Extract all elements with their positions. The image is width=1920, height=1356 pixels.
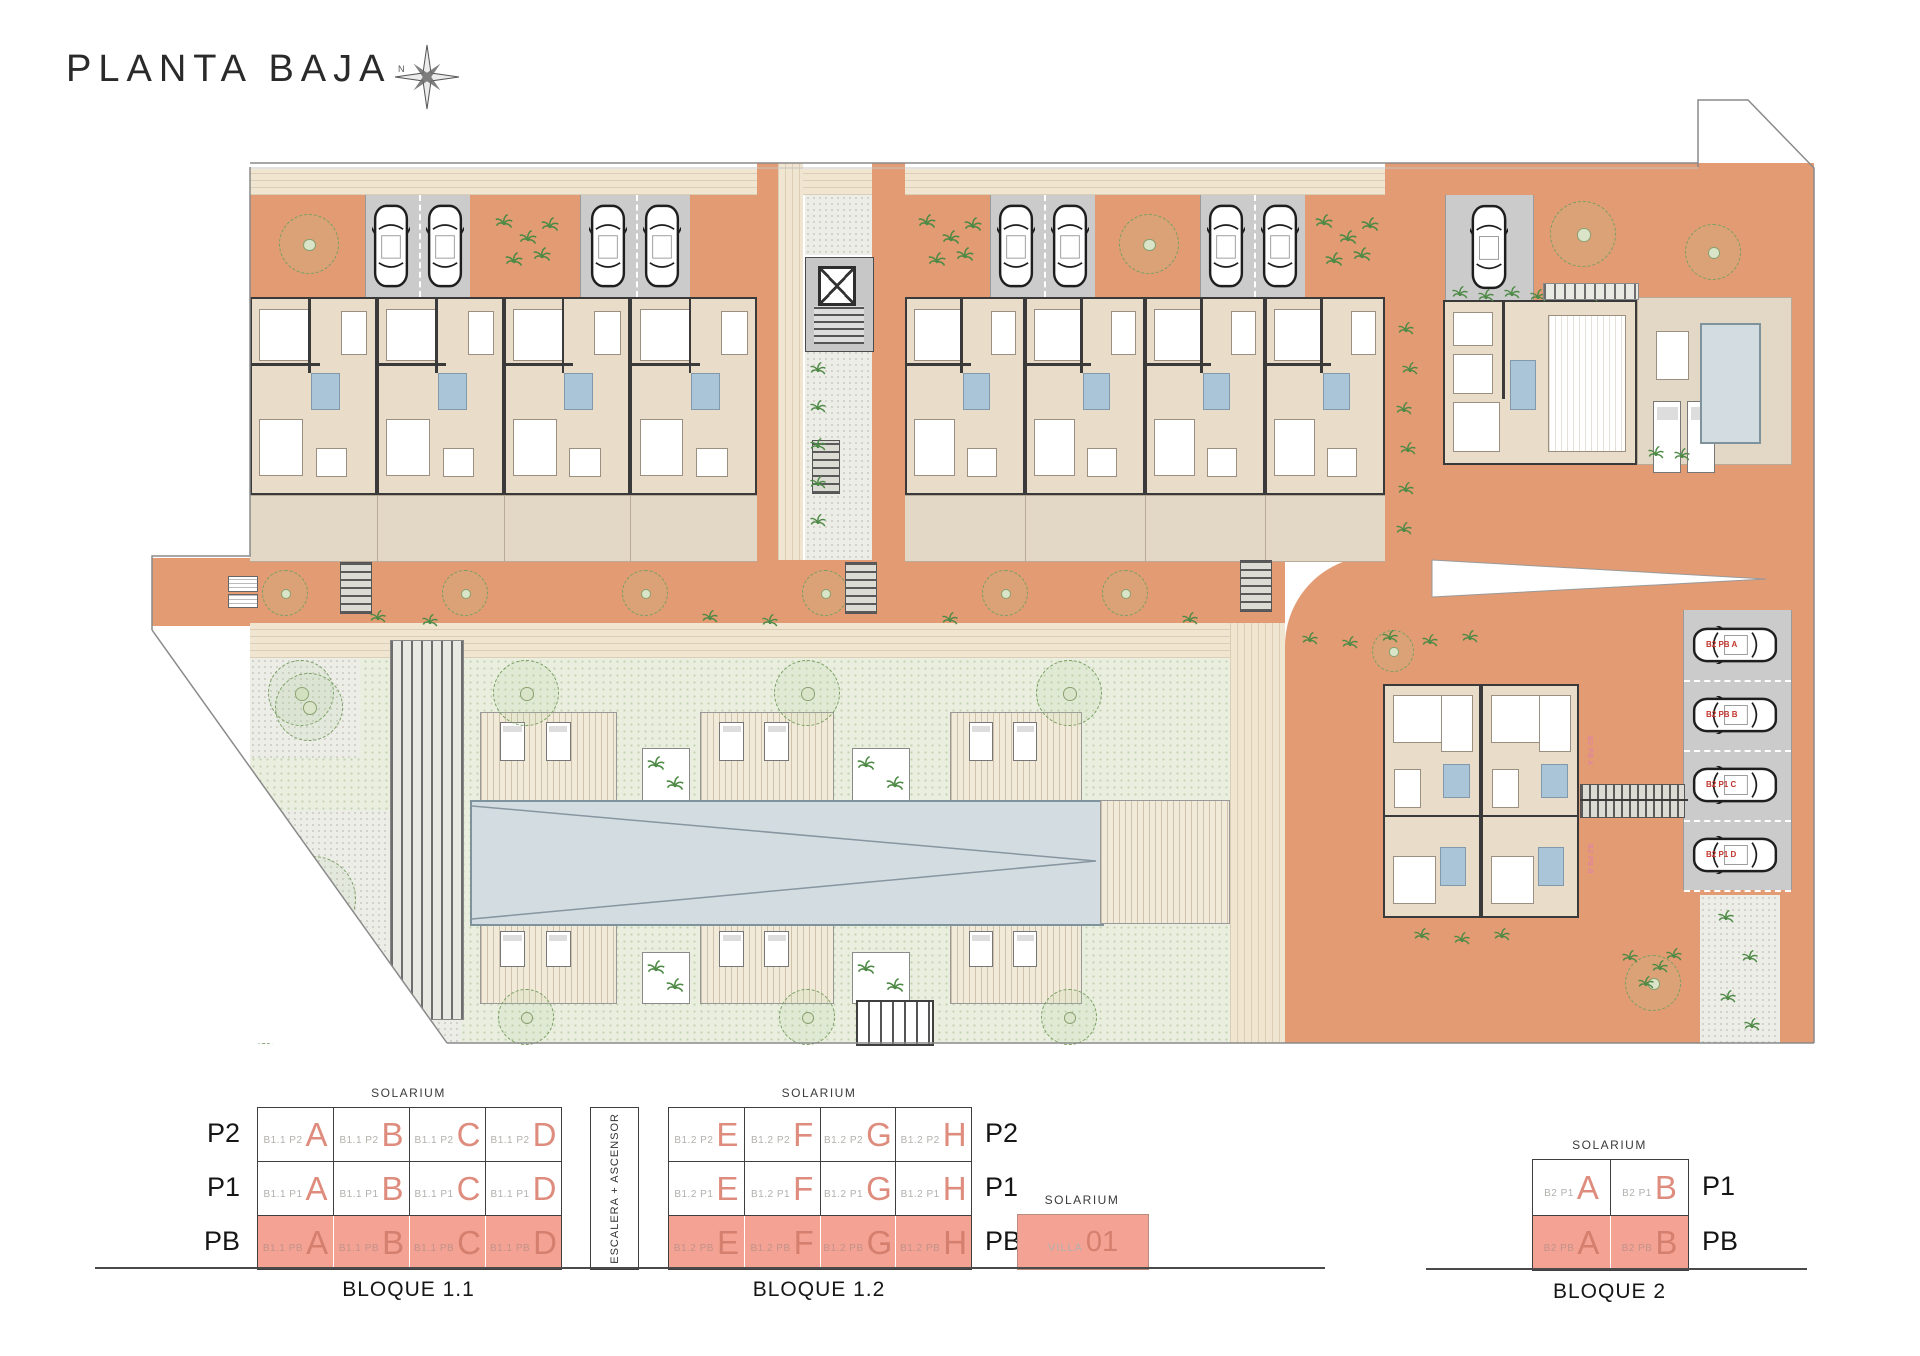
palm-icon [368,608,388,628]
palm-icon [664,976,686,998]
unit-letter: F [794,1226,814,1259]
floor-labels: P1PB [1702,1159,1764,1269]
unit-letter: A [306,1172,328,1205]
stair-hatch [814,306,864,344]
unit-letter: G [866,1172,892,1205]
unit-prefix: B1.2 P1 [674,1189,713,1200]
sun-lounger [764,722,788,761]
palm-icon [962,215,984,237]
palm-icon [1664,946,1684,966]
unit-cell: B1.1 PBC [410,1216,486,1269]
parking-space-label: B2 PB B [1706,710,1738,719]
sun-lounger [546,722,571,761]
sun-lounger [1013,722,1037,761]
tree-icon [493,660,559,726]
palm-icon [808,436,828,456]
palm-icon [503,250,525,272]
unit-prefix: B1.2 PB [823,1243,863,1254]
dining-table [1087,448,1117,477]
palm-icon [1716,908,1736,928]
floor-label: P1 [1702,1159,1764,1214]
bedroom-room [1453,312,1493,346]
palm-icon [940,610,960,630]
unit-cell: B1.2 PBG [821,1216,897,1269]
kitchen-room [1231,311,1256,356]
bedroom-room [640,309,691,361]
unit-prefix: B1.1 P2 [339,1135,378,1146]
palm-icon [1396,480,1416,500]
kitchen-room [341,311,368,356]
dining-table [967,448,997,477]
tree-icon [442,570,488,616]
schematic-grid: B1.1 P2AB1.1 P2BB1.1 P2CB1.1 P2DB1.1 P1A… [257,1107,562,1270]
unit-prefix: B1.1 P2 [415,1135,454,1146]
interior-wall [562,299,565,373]
tree-icon [982,570,1028,616]
palm-icon [1400,360,1420,380]
sun-lounger [969,722,993,761]
sun-lounger [1013,931,1037,967]
sun-lounger [719,931,743,967]
unit-prefix: B2 P1 [1544,1188,1574,1199]
palm-icon [1394,400,1414,420]
svg-text:N: N [398,64,405,74]
unit-cell: B1.2 PBE [669,1216,745,1269]
apartment-unit-block12 [1145,297,1265,495]
bedroom-room [640,419,684,475]
unit-prefix: B1.2 PB [900,1243,940,1254]
stair-label: ESCALERA + ASCENSOR [609,1113,621,1264]
palm-icon [1742,1016,1762,1036]
palm-icon [1620,948,1640,968]
apartment-unit-block11 [250,297,377,495]
bathroom-room [311,373,340,410]
bedroom-room [1441,695,1473,752]
floor-row: B2 P1AB2 P1B [1533,1160,1688,1216]
apartment-unit-block12 [1025,297,1145,495]
unit-letter: B [382,1226,404,1259]
apartment-unit-block11 [504,297,631,495]
dining-table [443,448,474,477]
sun-lounger [764,931,788,967]
outdoor-dining-table [1656,331,1689,379]
parking-space-label: B2 P1 D [1706,850,1736,859]
unit-prefix: B1.1 P1 [263,1189,302,1200]
unit-letter: A [1577,1171,1599,1204]
unit-prefix: B1.1 P1 [491,1189,530,1200]
palm-icon [531,245,553,267]
solarium-label: SOLARIUM [1532,1138,1687,1152]
interior-wall [1080,299,1083,373]
bathroom-room [1510,360,1537,410]
palm-icon [1718,988,1738,1008]
palm-icon [1394,520,1414,540]
pool-side-deck [1100,800,1230,924]
bathroom-room [1323,373,1351,410]
bathroom-room [691,373,720,410]
unit-prefix: B1.1 P1 [339,1189,378,1200]
car-icon [426,204,464,288]
plan-unit-label: B2 PB A [1586,736,1593,766]
dining-table [696,448,727,477]
interior-wall [308,299,311,373]
unit-letter: D [533,1226,557,1259]
interior-wall [1483,815,1577,818]
bedroom-room [259,309,310,361]
stair-plaza-gravel [805,195,872,255]
unit-cell: B2 P1B [1611,1160,1688,1215]
sun-deck-platform [700,712,834,802]
unit-cell: B1.2 P1E [669,1162,745,1215]
palm-icon [1398,440,1418,460]
villa-schematic-box: VILLA01 [1017,1214,1149,1270]
car-icon [1051,204,1089,288]
tree-icon [774,660,840,726]
unit-prefix: B1.2 P2 [674,1135,713,1146]
dining-table [1207,448,1237,477]
unit-letter: B [1655,1226,1677,1259]
unit-letter: F [793,1118,813,1151]
palm-icon [1420,632,1440,652]
palm-icon [1180,610,1200,630]
bathroom-room [1440,847,1466,886]
unit-cell: B1.1 P2A [258,1108,334,1161]
dining-table [1394,769,1420,808]
palm-icon [760,612,780,632]
villa-number: 01 [1086,1228,1118,1257]
unit-letter: C [457,1118,481,1151]
kitchen-room [1111,311,1136,356]
unit-cell: B1.1 P2C [410,1108,486,1161]
unit-letter: E [717,1226,739,1259]
unit-letter: D [533,1172,557,1205]
unit-letter: E [716,1118,738,1151]
tree-icon [1119,214,1179,274]
terrace-divider [504,496,505,561]
palm-icon [1380,628,1400,648]
unit-letter: G [867,1226,893,1259]
unit-prefix: B1.2 P1 [901,1189,940,1200]
palm-icon [1476,287,1496,307]
floor-label: P2 [178,1107,240,1161]
unit-prefix: B1.1 P2 [491,1135,530,1146]
floor-label: PB [178,1214,240,1268]
bedroom-room [1393,856,1436,904]
bathroom-room [1083,373,1111,410]
palm-icon [493,212,515,234]
unit-cell: B1.2 P2E [669,1108,745,1161]
bedroom-room [1274,419,1315,475]
palm-icon [420,612,440,632]
car-icon [643,204,681,288]
bedroom-room [1034,419,1075,475]
block11-terrace-band [250,495,757,562]
palm-icon [539,215,561,237]
block-name: BLOQUE 1.1 [197,1278,620,1302]
bloque2-unit-a [1383,684,1481,918]
sun-lounger [969,931,993,967]
pergola-canopy [390,640,464,1020]
unit-prefix: B1.1 PB [339,1243,379,1254]
unit-letter: B [1655,1171,1677,1204]
car-icon [372,204,410,288]
unit-prefix: B1.2 P2 [901,1135,940,1146]
floor-labels: P2P1PB [178,1107,240,1268]
unit-cell: B1.2 P1G [821,1162,897,1215]
bay-separator-line [1254,195,1256,297]
villa-pool [1700,323,1761,444]
unit-prefix: B1.2 PB [750,1243,790,1254]
staircase-icon [1240,560,1272,612]
solarium-label: SOLARIUM [1017,1193,1147,1207]
bathroom-room [1203,373,1231,410]
unit-cell: B1.1 PBA [258,1216,334,1269]
unit-prefix: B2 P1 [1622,1188,1652,1199]
bathroom-room [963,373,991,410]
car-icon [589,204,627,288]
unit-cell: B1.1 P1C [410,1162,486,1215]
bedroom-room [513,309,564,361]
unit-cell: B1.2 P1H [896,1162,971,1215]
unit-prefix: B1.2 P2 [751,1135,790,1146]
block12-terrace-band [905,495,1385,562]
site-signboard [228,594,258,608]
parking-space-label: B2 P1 C [1706,780,1736,789]
sun-lounger [546,931,571,967]
unit-letter: H [943,1172,967,1205]
apartment-unit-block12 [1265,297,1385,495]
tree-icon [1102,570,1148,616]
tree-icon [270,856,356,942]
unit-cell: B2 P1A [1533,1160,1611,1215]
unit-cell: B1.2 P1F [745,1162,821,1215]
tree-icon [228,970,302,1044]
parking-space-label: B2 PB A [1706,640,1737,649]
palm-icon [1502,284,1522,304]
car-icon [1207,204,1245,288]
block-name: BLOQUE 2 [1472,1280,1747,1304]
interior-wall [1502,302,1505,399]
unit-letter: H [943,1226,967,1259]
palm-icon [1412,926,1432,946]
kitchen-room [721,311,748,356]
bedroom-room [1034,309,1082,361]
bedroom-room [1453,354,1493,395]
unit-prefix: B1.2 P1 [751,1189,790,1200]
sun-lounger [500,931,525,967]
palm-icon [1636,974,1656,994]
sun-deck-platform [480,712,617,802]
dining-table [316,448,347,477]
tree-icon [802,570,848,616]
unit-cell: B1.1 P2D [486,1108,561,1161]
unit-letter: C [457,1172,481,1205]
tree-icon [779,989,835,1045]
unit-cell: B1.2 P2G [821,1108,897,1161]
palm-icon [1323,250,1345,272]
unit-prefix: B1.1 P1 [415,1189,454,1200]
unit-letter: A [306,1226,328,1259]
palm-icon [1492,926,1512,946]
terrace-divider [630,496,631,561]
floor-plan-page: PLANTA BAJA N B2 PB AB2 PB BB2 PB AB2 PB… [0,0,1920,1356]
palm-icon [1300,630,1320,650]
block-name: BLOQUE 1.2 [608,1278,1030,1302]
tree-icon [1685,224,1741,280]
villa-building [1443,300,1637,465]
palm-icon [664,774,686,796]
unit-prefix: B2 PB [1622,1243,1653,1254]
unit-prefix: B1.2 P1 [824,1189,863,1200]
unit-cell: B1.2 P2H [896,1108,971,1161]
palm-icon [1452,930,1472,950]
sun-deck-platform [480,922,617,1004]
bedroom-room [1393,695,1442,743]
ground-line [1426,1268,1807,1270]
apartment-unit-block11 [377,297,504,495]
unit-letter: H [943,1118,967,1151]
dining-table [569,448,600,477]
path-side-strip-left [757,163,778,560]
car-icon [997,204,1035,288]
palm-icon [954,245,976,267]
staircase-icon [340,562,372,614]
floor-row: B1.1 P2AB1.1 P2BB1.1 P2CB1.1 P2D [258,1108,561,1162]
unit-cell: B1.1 P1B [334,1162,410,1215]
palm-icon [808,360,828,380]
solarium-label: SOLARIUM [668,1086,970,1100]
terrace-divider [1025,496,1026,561]
floor-row: B1.1 PBAB1.1 PBBB1.1 PBCB1.1 PBD [258,1216,561,1269]
ground-line [95,1267,1325,1269]
palm-icon [884,774,906,796]
palm-icon [855,958,877,980]
unit-cell: B1.1 P1A [258,1162,334,1215]
unit-cell: B1.2 PBH [896,1216,971,1269]
tree-icon [1041,989,1097,1045]
interior-wall [689,299,692,373]
terrace-patch-left [152,558,250,626]
sun-deck-platform [950,712,1082,802]
bedroom-room [1274,309,1322,361]
elevator-icon [818,266,856,306]
villa-prefix: VILLA [1048,1242,1083,1254]
unit-letter: G [866,1118,892,1151]
unit-prefix: B2 PB [1544,1243,1575,1254]
kitchen-room [594,311,621,356]
kitchen-room [991,311,1016,356]
paved-path-vertical [1230,623,1285,1043]
unit-letter: D [533,1118,557,1151]
floor-row: B1.1 P1AB1.1 P1BB1.1 P1CB1.1 P1D [258,1162,561,1216]
car-icon [1470,204,1508,290]
bedroom-room [914,419,955,475]
tree-icon [498,989,554,1045]
palm-icon [1351,245,1373,267]
swimming-pool [470,800,1104,926]
bay-separator-line [636,195,638,297]
bbq-kiosk [856,1000,934,1046]
bay-separator-line [419,195,421,297]
page-title: PLANTA BAJA [66,48,392,91]
bedroom-room [386,309,437,361]
bathroom-room [438,373,467,410]
unit-prefix: B1.1 PB [263,1243,303,1254]
unit-letter: A [306,1118,328,1151]
interior-wall [1200,299,1203,373]
bedroom-room [1453,402,1501,452]
bathroom-room [1541,764,1567,798]
living-room [1548,315,1626,452]
tree-icon [275,673,343,741]
unit-cell: B1.1 P2B [334,1108,410,1161]
interior-wall [435,299,438,373]
floor-row: B2 PBAB2 PBB [1533,1216,1688,1271]
unit-prefix: B1.1 PB [490,1243,530,1254]
tree-icon [1036,660,1102,726]
villa-pergola-strip [1543,283,1639,300]
tree-icon [262,570,308,616]
floor-row: B1.2 P1EB1.2 P1FB1.2 P1GB1.2 P1H [669,1162,971,1216]
staircase-icon [845,562,877,614]
schematic-grid: B1.2 P2EB1.2 P2FB1.2 P2GB1.2 P2HB1.2 P1E… [668,1107,972,1270]
bathroom-room [1538,847,1564,886]
bedroom-room [1491,695,1540,743]
solarium-label: SOLARIUM [257,1086,560,1100]
unit-letter: F [793,1172,813,1205]
palm-icon [1313,212,1335,234]
palm-icon [1359,215,1381,237]
interior-wall [960,299,963,373]
palm-icon [1740,948,1760,968]
bedroom-room [1539,695,1571,752]
bathroom-room [564,373,593,410]
path-side-strip-right [872,163,905,560]
bedroom-room [386,419,430,475]
site-signboard [228,576,258,592]
tree-icon [1550,201,1616,267]
car-icon [1261,204,1299,288]
palm-icon [926,250,948,272]
tree-icon [279,214,339,274]
bloque2-unit-b [1481,684,1579,918]
floor-label: PB [1702,1214,1764,1269]
palm-icon [1646,444,1666,464]
palm-icon [1672,446,1692,466]
dining-table [1327,448,1357,477]
plan-unit-label: B2 PB B [1586,844,1593,874]
kitchen-room [1351,311,1376,356]
interior-wall [1385,815,1479,818]
stair-elevator-schematic: ESCALERA + ASCENSOR [590,1107,639,1270]
apartment-unit-block11 [630,297,757,495]
private-patio [690,195,757,297]
palm-icon [1450,284,1470,304]
unit-cell: B1.2 P2F [745,1108,821,1161]
schematic-grid: B2 P1AB2 P1BB2 PBAB2 PBB [1532,1159,1689,1271]
interior-wall [1320,299,1323,373]
palm-icon [808,398,828,418]
floor-row: B1.2 PBEB1.2 PBFB1.2 PBGB1.2 PBH [669,1216,971,1269]
unit-letter: C [457,1226,481,1259]
bedroom-room [259,419,303,475]
unit-cell: B1.1 PBD [486,1216,561,1269]
access-stair-arm [1580,784,1685,818]
kitchen-room [468,311,495,356]
bedroom-room [1154,309,1202,361]
unit-prefix: B1.2 P2 [824,1135,863,1146]
palm-icon [916,212,938,234]
